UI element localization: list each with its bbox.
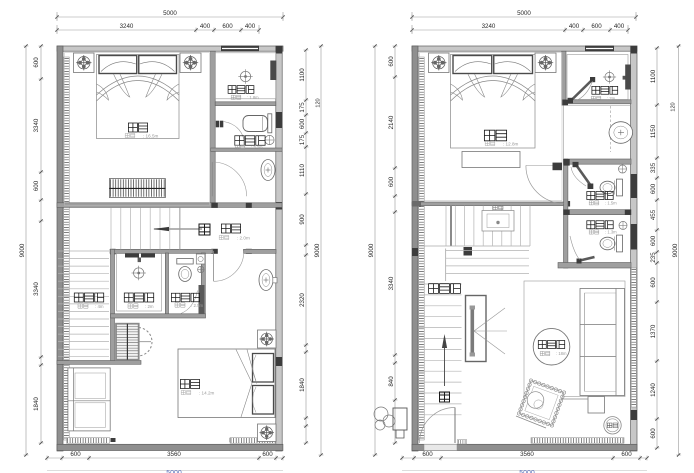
svg-text:: 2.0m: : 2.0m <box>237 236 250 241</box>
svg-text:600: 600 <box>222 23 233 30</box>
svg-text:: 14.2m: : 14.2m <box>199 391 214 396</box>
svg-text:600: 600 <box>388 56 395 67</box>
svg-text:455: 455 <box>650 209 657 220</box>
svg-text:600: 600 <box>621 451 632 458</box>
svg-text:120: 120 <box>316 98 322 107</box>
svg-text:1240: 1240 <box>650 383 657 397</box>
svg-text:600: 600 <box>650 183 657 194</box>
svg-text:335: 335 <box>650 162 657 173</box>
svg-text:120: 120 <box>671 102 677 111</box>
svg-text:: 2.1m: : 2.1m <box>251 145 263 150</box>
svg-text:: 2.5m: : 2.5m <box>191 303 204 308</box>
svg-text:9000: 9000 <box>368 243 375 257</box>
svg-text:600: 600 <box>33 57 40 68</box>
svg-text:175: 175 <box>299 102 306 113</box>
svg-text:600: 600 <box>650 428 657 439</box>
svg-text:3340: 3340 <box>33 282 40 296</box>
svg-text:9000: 9000 <box>672 243 679 257</box>
svg-text:2320: 2320 <box>299 293 306 307</box>
svg-text:3240: 3240 <box>482 23 496 30</box>
svg-text:1110: 1110 <box>299 164 306 177</box>
svg-text:3340: 3340 <box>33 118 40 132</box>
svg-text:1370: 1370 <box>650 324 657 338</box>
svg-text:5000: 5000 <box>163 10 177 17</box>
svg-text:1100: 1100 <box>650 69 657 83</box>
svg-text:9000: 9000 <box>314 243 321 257</box>
svg-text:600: 600 <box>591 23 602 30</box>
svg-text:840: 840 <box>388 376 395 387</box>
svg-text:3560: 3560 <box>167 451 181 458</box>
svg-text:600: 600 <box>33 180 40 191</box>
svg-text:600: 600 <box>650 277 657 288</box>
svg-text:2140: 2140 <box>388 115 395 129</box>
svg-text:600: 600 <box>262 451 273 458</box>
svg-text:5000: 5000 <box>517 10 531 17</box>
svg-text:: 2m: : 2m <box>145 304 154 309</box>
svg-text:235: 235 <box>650 252 657 263</box>
svg-text:600: 600 <box>422 451 433 458</box>
svg-text:: 4m: : 4m <box>95 304 104 309</box>
svg-text:1150: 1150 <box>650 124 657 138</box>
svg-text:3340: 3340 <box>388 276 395 290</box>
svg-text:: 1.3m: : 1.3m <box>605 230 617 235</box>
svg-text:400: 400 <box>569 23 580 30</box>
svg-text:: 12.8m: : 12.8m <box>503 142 518 147</box>
svg-text:900: 900 <box>299 214 306 225</box>
svg-text:1840: 1840 <box>33 397 40 411</box>
svg-text:: 16.5m: : 16.5m <box>143 134 158 139</box>
svg-text:1100: 1100 <box>299 68 306 82</box>
svg-text:400: 400 <box>614 23 625 30</box>
svg-text:3240: 3240 <box>120 23 134 30</box>
svg-text:400: 400 <box>200 23 211 30</box>
svg-text:: 2m: : 2m <box>607 96 616 101</box>
svg-text:: 1.5m: : 1.5m <box>605 201 617 206</box>
svg-text:3560: 3560 <box>520 451 534 458</box>
svg-text:600: 600 <box>388 176 395 187</box>
svg-text:9000: 9000 <box>19 243 26 257</box>
svg-text:175: 175 <box>299 134 306 145</box>
svg-text:600: 600 <box>650 235 657 246</box>
svg-text:: 1.8m: : 1.8m <box>247 95 259 100</box>
svg-text:600: 600 <box>299 118 306 129</box>
svg-text:600: 600 <box>70 451 81 458</box>
svg-text:: 18m: : 18m <box>556 351 567 356</box>
svg-text:400: 400 <box>245 23 256 30</box>
svg-text:1840: 1840 <box>299 378 306 392</box>
